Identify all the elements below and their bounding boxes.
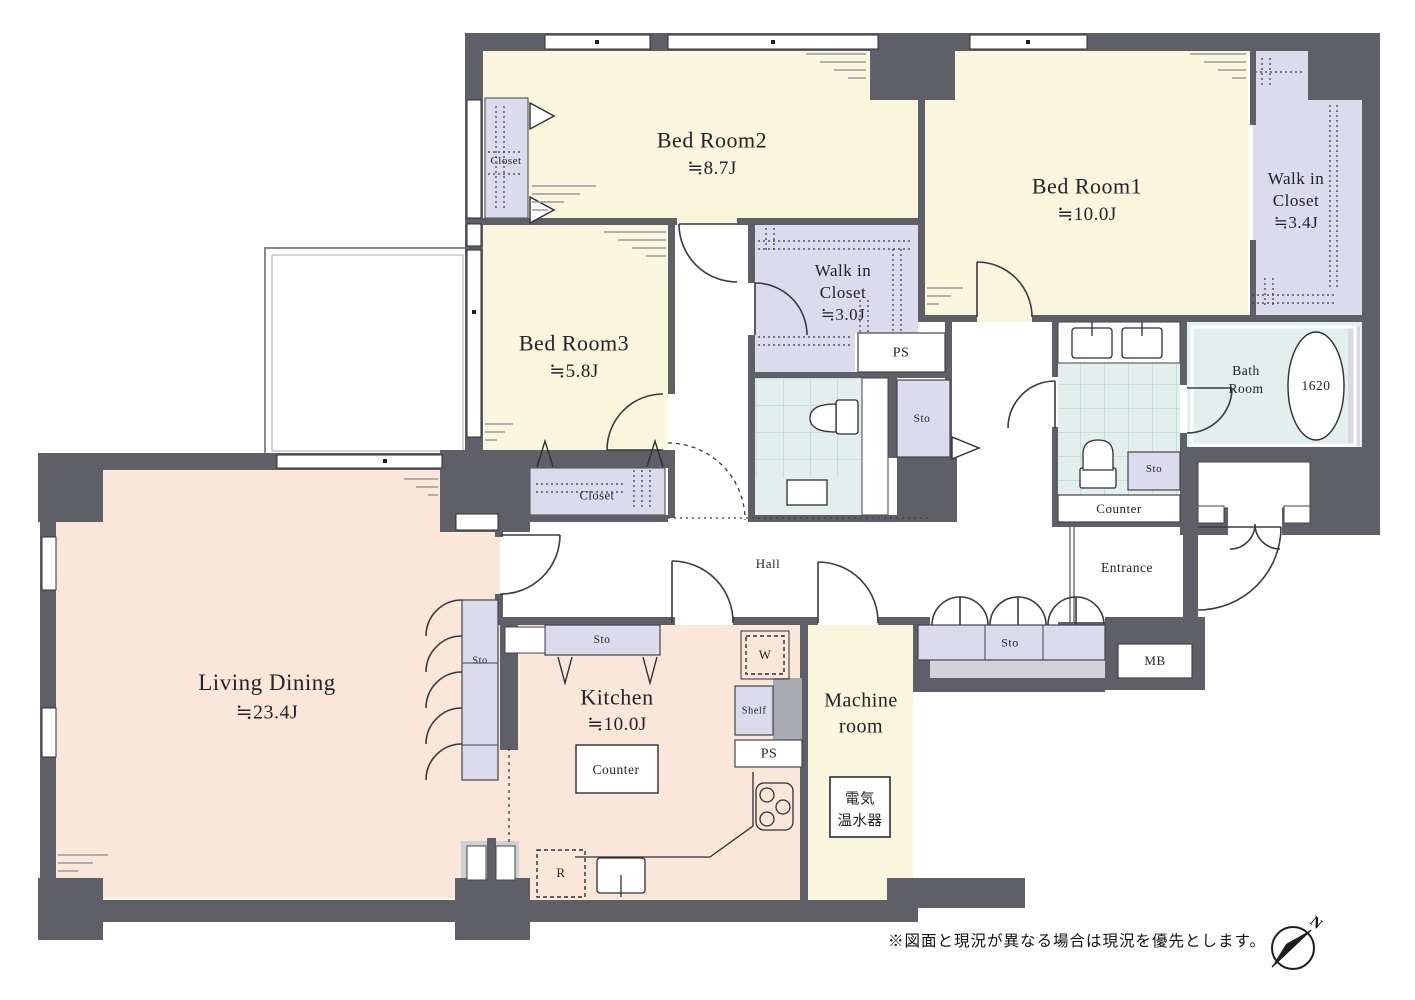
sto-wc-label: Sto bbox=[914, 413, 931, 425]
ps-label-2: PS bbox=[761, 748, 778, 763]
wic2-line1: Walk in bbox=[815, 262, 871, 280]
counter-kitchen-label: Counter bbox=[593, 763, 640, 777]
sto-living-label: Sto bbox=[472, 655, 488, 666]
wic2-line2: Closet bbox=[820, 284, 866, 302]
ps-label-1: PS bbox=[893, 347, 910, 362]
sto-hall-label: Sto bbox=[1001, 637, 1019, 650]
disclaimer-note: ※図面と現況が異なる場合は現況を優先とします。 bbox=[888, 929, 1266, 951]
bedroom1-size: ≒10.0J bbox=[1057, 205, 1117, 225]
kitchen-name: Kitchen bbox=[580, 685, 653, 708]
sto-washroom-label: Sto bbox=[1146, 464, 1162, 476]
wic1-line2: Closet bbox=[1273, 192, 1319, 210]
mb-label: MB bbox=[1144, 654, 1165, 668]
entrance-label: Entrance bbox=[1101, 561, 1153, 575]
refrigerator-label: R bbox=[556, 866, 565, 880]
bedroom3-size: ≒5.8J bbox=[549, 362, 599, 382]
bedroom3-name: Bed Room3 bbox=[519, 331, 629, 354]
wic2-size: ≒3.0J bbox=[821, 306, 866, 324]
void-courtyard bbox=[265, 248, 470, 458]
counter-washroom-label: Counter bbox=[1096, 502, 1141, 516]
machine-room-line2: room bbox=[839, 717, 883, 738]
wic1-size: ≒3.4J bbox=[1274, 214, 1319, 232]
closet-bedroom2-label: Closet bbox=[490, 156, 521, 168]
bedroom2-name: Bed Room2 bbox=[657, 128, 767, 151]
bathroom-line1: Bath bbox=[1232, 364, 1260, 378]
bedroom2-size: ≒8.7J bbox=[687, 159, 737, 179]
kitchen-size: ≒10.0J bbox=[587, 715, 647, 735]
wic1-line1: Walk in bbox=[1268, 170, 1324, 188]
compass-icon bbox=[1272, 927, 1314, 969]
sto-kitchen-label: Sto bbox=[594, 634, 611, 646]
tub-size: 1620 bbox=[1302, 379, 1331, 393]
hall-label: Hall bbox=[756, 557, 780, 571]
bedroom1-name: Bed Room1 bbox=[1032, 174, 1142, 197]
water-heater-line1: 電気 bbox=[845, 792, 875, 807]
closet-bedroom3-label: Closet bbox=[580, 489, 615, 502]
shelf-label: Shelf bbox=[742, 705, 767, 716]
living-size: ≒23.4J bbox=[236, 703, 299, 724]
living-name: Living Dining bbox=[198, 671, 335, 695]
washer-label: W bbox=[759, 648, 772, 662]
bathroom-line2: Room bbox=[1228, 382, 1263, 396]
water-heater-line2: 温水器 bbox=[838, 814, 883, 829]
machine-room-line1: Machine bbox=[824, 691, 897, 712]
floor-plan: Bed Room2 ≒8.7J Bed Room1 ≒10.0J Walk in… bbox=[0, 0, 1415, 1000]
